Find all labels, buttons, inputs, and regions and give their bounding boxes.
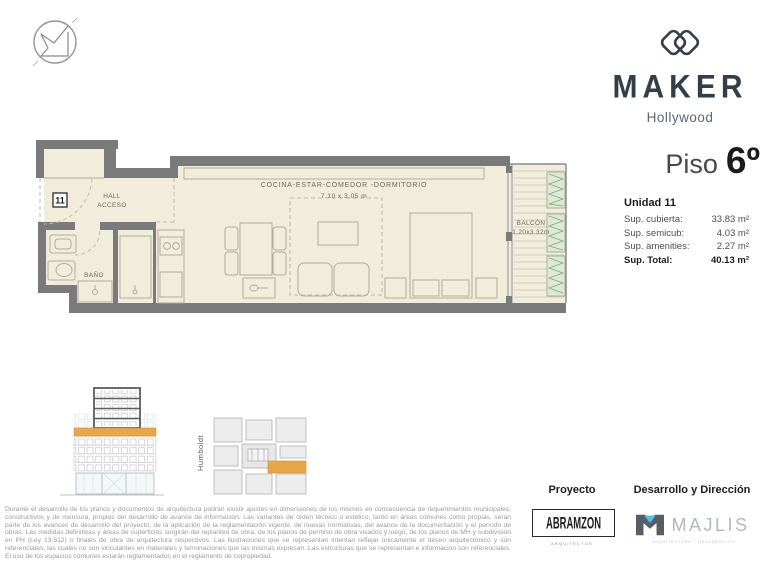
elevation-floors [74, 437, 156, 471]
balcony-dims: 1.20x3.32m [512, 229, 549, 236]
room-dims: 7.10 x 3.05 m [321, 193, 367, 200]
svg-text:11: 11 [55, 196, 65, 206]
building-elevation [60, 386, 164, 498]
street-label: Humboldt [196, 434, 205, 471]
abramzon-tagline: ARQUITECTOS [532, 541, 612, 546]
brand-block: MAKER Hollywood [596, 24, 764, 125]
key-plan-unit-highlight [268, 461, 306, 473]
unit-row: Sup. semicub:4.03 m² [624, 227, 749, 241]
floor-word: Piso [665, 149, 718, 179]
key-plan: Humboldt [192, 408, 326, 508]
unit-number-tag: 11 [53, 193, 67, 207]
floor-number: 6º [726, 140, 760, 181]
floor-plan: 11 HALL ACCESO BAÑO COCINA-ESTAR-COMEDOR… [28, 136, 573, 316]
elevation-highlight-floor [74, 428, 156, 436]
brand-location: Hollywood [596, 110, 764, 125]
development-credit: Desarrollo y Dirección MAJLIS ARQUITECTU… [618, 484, 766, 544]
unit-row: Sup. amenities:2.27 m² [624, 240, 749, 254]
majlis-logo-icon [634, 511, 666, 539]
unit-title: Unidad 11 [624, 197, 749, 209]
unit-row: Sup. cubierta:33.83 m² [624, 213, 749, 227]
north-arrow-icon [28, 10, 84, 74]
maker-logo-icon [656, 24, 704, 62]
elevation-tower [94, 388, 140, 428]
brochure-page: MAKER Hollywood Piso6º Unidad 11 Sup. cu… [0, 0, 768, 576]
brand-name: MAKER [596, 70, 764, 107]
bath-label: BAÑO [84, 270, 104, 279]
elevation-storefront [76, 473, 154, 494]
room-label: COCINA-ESTAR-COMEDOR -DORMITORIO [261, 182, 428, 189]
unit-summary: Unidad 11 Sup. cubierta:33.83 m² Sup. se… [624, 197, 749, 267]
abramzon-logo: ABRAMZON [532, 509, 615, 537]
majlis-logo-text: MAJLIS [671, 515, 749, 536]
key-plan-footprint [214, 418, 306, 494]
legal-disclaimer: Durante el desarrollo de los planos y do… [5, 506, 511, 560]
balcony-label: BALCÓN [517, 218, 546, 227]
project-credit: Proyecto ABRAMZON ARQUITECTOS [532, 484, 612, 546]
hall-label2: ACCESO [97, 202, 126, 209]
floor-title: Piso6º [610, 140, 760, 182]
unit-total-row: Sup. Total:40.13 m² [624, 254, 749, 268]
majlis-tagline: ARQUITECTURA + DESARROLLOS [652, 540, 766, 544]
development-heading: Desarrollo y Dirección [618, 484, 766, 496]
hall-label: HALL [103, 193, 121, 200]
project-heading: Proyecto [532, 484, 612, 496]
